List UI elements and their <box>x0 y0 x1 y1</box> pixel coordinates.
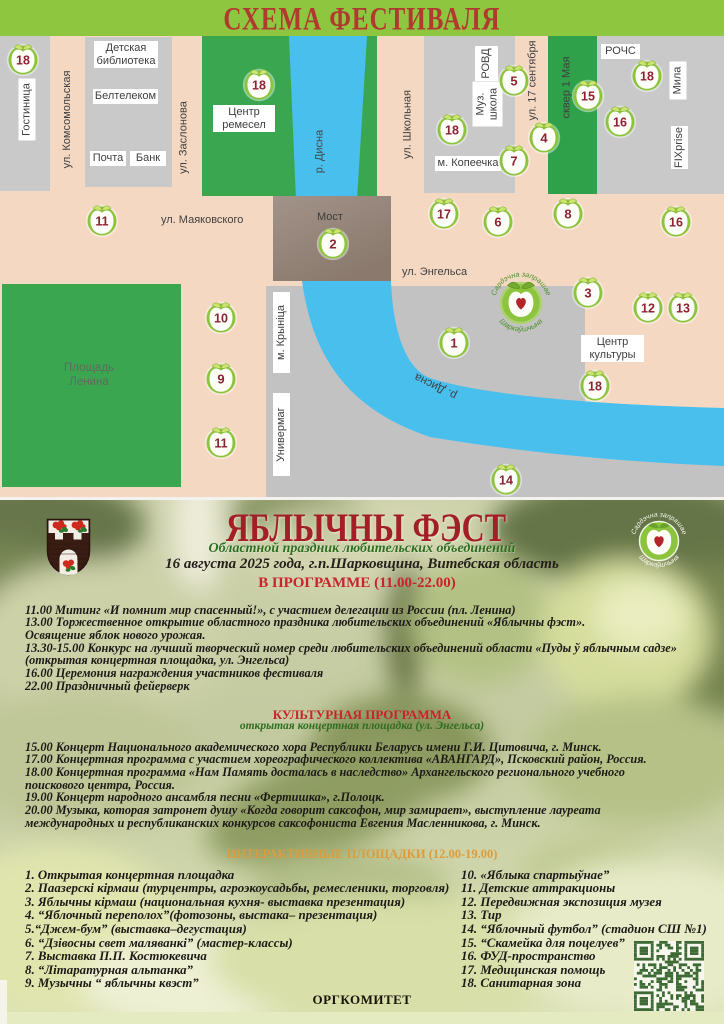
svg-text:17: 17 <box>437 208 451 222</box>
svg-text:5: 5 <box>510 74 517 89</box>
svg-text:13: 13 <box>676 302 690 316</box>
svg-text:3: 3 <box>584 286 591 301</box>
svg-text:7: 7 <box>510 154 517 169</box>
svg-text:18: 18 <box>445 124 459 138</box>
svg-text:8: 8 <box>564 207 571 222</box>
svg-text:16: 16 <box>669 216 683 230</box>
svg-text:1: 1 <box>450 336 457 351</box>
svg-text:14: 14 <box>499 474 513 488</box>
svg-text:16: 16 <box>613 116 627 130</box>
svg-text:18: 18 <box>640 70 654 84</box>
svg-text:12: 12 <box>641 302 655 316</box>
svg-text:6: 6 <box>494 215 501 230</box>
svg-text:18: 18 <box>16 54 30 68</box>
svg-text:4: 4 <box>540 131 548 146</box>
svg-text:10: 10 <box>214 312 228 326</box>
svg-text:2: 2 <box>329 237 336 252</box>
svg-text:18: 18 <box>588 380 602 394</box>
svg-text:18: 18 <box>252 79 266 93</box>
svg-text:11: 11 <box>214 437 227 451</box>
svg-text:9: 9 <box>217 372 224 387</box>
svg-text:15: 15 <box>581 90 595 104</box>
svg-text:11: 11 <box>95 215 108 229</box>
